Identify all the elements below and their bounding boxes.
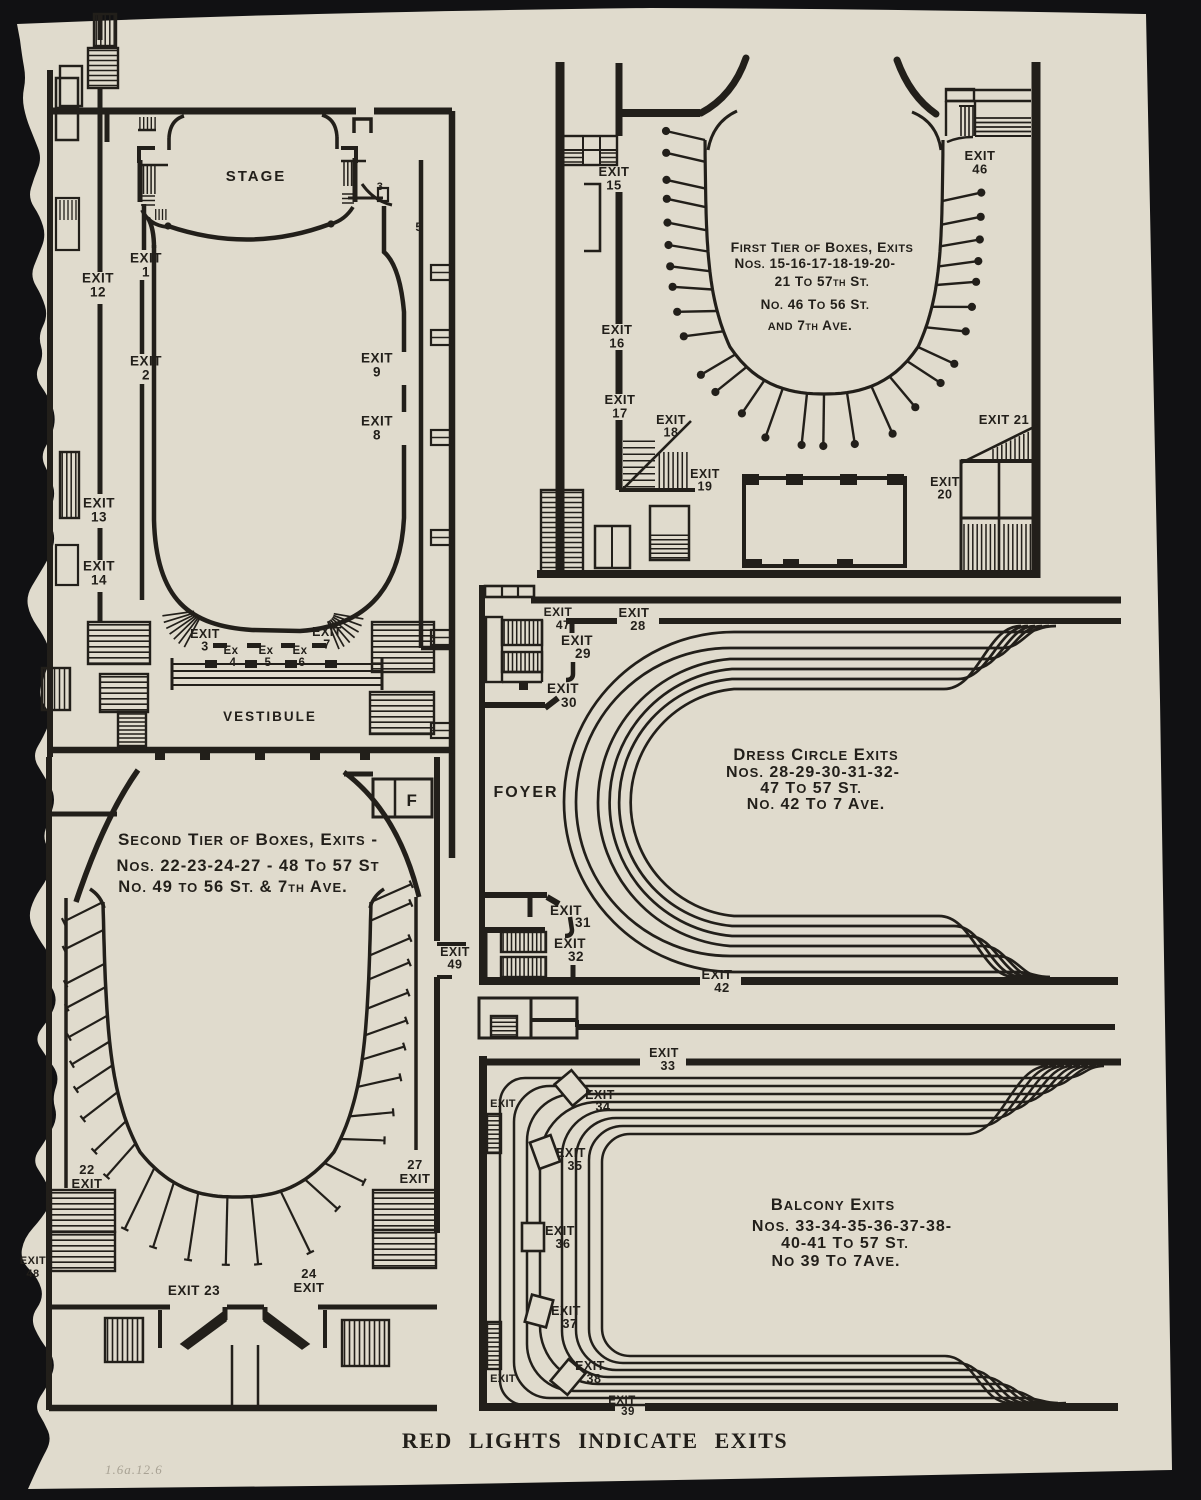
svg-text:EXIT: EXIT: [82, 271, 114, 286]
svg-text:1: 1: [142, 264, 150, 279]
svg-text:EXIT 23: EXIT 23: [168, 1283, 220, 1298]
svg-text:EXIT: EXIT: [490, 1098, 516, 1110]
svg-text:24: 24: [301, 1266, 317, 1281]
svg-text:EXIT: EXIT: [83, 559, 115, 574]
svg-text:NO. 46 TO 56 ST.: NO. 46 TO 56 ST.: [761, 297, 870, 312]
svg-text:47 TO 57 ST.: 47 TO 57 ST.: [760, 780, 862, 797]
svg-text:1.6a.12.6: 1.6a.12.6: [105, 1462, 163, 1477]
svg-text:NO. 49 TO 56 ST. & 7TH AVE.: NO. 49 TO 56 ST. & 7TH AVE.: [118, 878, 347, 896]
svg-text:28: 28: [630, 618, 645, 633]
svg-text:19: 19: [698, 480, 713, 494]
svg-text:37: 37: [563, 1317, 578, 1331]
svg-text:NO. 42 TO 7 AVE.: NO. 42 TO 7 AVE.: [747, 796, 885, 813]
svg-text:29: 29: [575, 646, 591, 661]
svg-text:35: 35: [568, 1159, 583, 1173]
svg-text:42: 42: [714, 980, 729, 995]
svg-text:15: 15: [606, 177, 621, 192]
svg-text:BALCONY EXITS: BALCONY EXITS: [771, 1196, 895, 1214]
svg-text:VESTIBULE: VESTIBULE: [223, 709, 317, 724]
svg-text:NOS. 28-29-30-31-32-: NOS. 28-29-30-31-32-: [726, 764, 900, 781]
svg-text:EXIT: EXIT: [649, 1046, 679, 1060]
svg-text:46: 46: [972, 161, 987, 176]
svg-text:36: 36: [556, 1237, 571, 1251]
svg-text:EXIT: EXIT: [130, 354, 162, 369]
svg-text:13: 13: [91, 509, 107, 524]
svg-text:EXIT: EXIT: [361, 414, 393, 429]
svg-text:EXIT: EXIT: [556, 1146, 586, 1160]
svg-text:EXIT: EXIT: [400, 1171, 431, 1186]
svg-text:NO 39 TO 7AVE.: NO 39 TO 7AVE.: [772, 1253, 901, 1270]
svg-text:F: F: [407, 791, 418, 810]
svg-text:FOYER: FOYER: [493, 784, 558, 801]
svg-text:27: 27: [407, 1157, 422, 1172]
svg-text:48: 48: [26, 1268, 39, 1280]
svg-text:9: 9: [373, 364, 381, 379]
svg-text:NOS. 15-16-17-18-19-20-: NOS. 15-16-17-18-19-20-: [734, 256, 895, 271]
svg-text:22: 22: [79, 1162, 94, 1177]
svg-text:EXIT: EXIT: [544, 605, 573, 619]
svg-text:EXIT: EXIT: [545, 1224, 575, 1238]
svg-text:EXIT 21: EXIT 21: [979, 412, 1029, 427]
svg-text:14: 14: [91, 572, 107, 587]
svg-text:EXIT: EXIT: [490, 1373, 516, 1385]
svg-text:EXIT: EXIT: [294, 1280, 325, 1295]
svg-text:NOS. 33-34-35-36-37-38-: NOS. 33-34-35-36-37-38-: [752, 1218, 952, 1235]
svg-text:EXIT: EXIT: [551, 1304, 581, 1318]
svg-text:2: 2: [142, 367, 150, 382]
svg-text:21 TO 57TH ST.: 21 TO 57TH ST.: [775, 274, 870, 289]
svg-text:31: 31: [575, 915, 591, 930]
svg-text:NOS. 22-23-24-27 - 48 TO 57 ST: NOS. 22-23-24-27 - 48 TO 57 ST: [116, 857, 379, 875]
svg-text:40-41 TO 57 ST.: 40-41 TO 57 ST.: [781, 1235, 909, 1252]
svg-text:39: 39: [621, 1406, 635, 1418]
svg-text:EXIT: EXIT: [361, 351, 393, 366]
svg-text:DRESS CIRCLE EXITS: DRESS CIRCLE EXITS: [733, 746, 898, 764]
svg-text:EXIT: EXIT: [72, 1176, 103, 1191]
svg-text:47: 47: [556, 618, 570, 632]
svg-text:16: 16: [609, 335, 624, 350]
svg-text:12: 12: [90, 284, 106, 299]
svg-text:49: 49: [448, 958, 463, 972]
svg-text:30: 30: [561, 695, 577, 710]
svg-text:EXIT: EXIT: [83, 496, 115, 511]
svg-text:EXIT: EXIT: [20, 1255, 46, 1267]
svg-text:17: 17: [612, 405, 627, 420]
svg-text:EXIT: EXIT: [547, 681, 579, 696]
svg-text:EXIT: EXIT: [575, 1359, 605, 1373]
svg-text:STAGE: STAGE: [226, 168, 287, 185]
svg-text:RED LIGHTS INDICATE EXITS: RED LIGHTS INDICATE EXITS: [402, 1428, 788, 1453]
svg-text:20: 20: [938, 488, 953, 502]
svg-text:EXIT: EXIT: [130, 251, 162, 266]
svg-text:33: 33: [661, 1059, 676, 1073]
svg-text:34: 34: [596, 1100, 611, 1114]
svg-text:32: 32: [568, 949, 584, 964]
svg-text:SECOND TIER OF BOXES, EXITS: SECOND TIER OF BOXES, EXITS -: [118, 830, 378, 849]
svg-text:38: 38: [587, 1372, 602, 1386]
svg-text:8: 8: [373, 427, 381, 442]
svg-text:3: 3: [201, 640, 208, 654]
